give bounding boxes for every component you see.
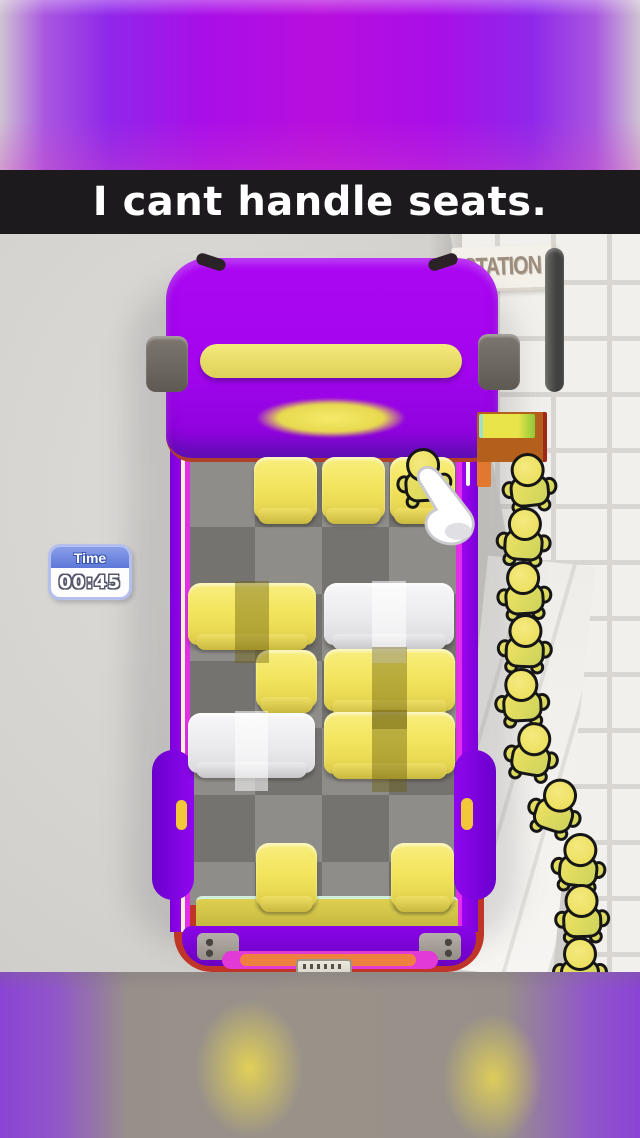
timer-header: Time [51, 547, 129, 568]
caption-text: I cant handle seats. [93, 179, 547, 225]
bus-mirror-right [478, 334, 520, 390]
bus-seat-white-double-7[interactable] [188, 713, 315, 773]
bus-hood-highlight [256, 398, 406, 438]
bus-seat-yellow-single-10[interactable] [391, 843, 454, 907]
timer-value: 00:45 [51, 568, 129, 597]
queue-passenger-9 [552, 936, 608, 972]
bus-seat-yellow-double-8[interactable] [324, 712, 455, 774]
bus-seat-yellow-double-6[interactable] [324, 649, 455, 711]
bus-windshield [200, 344, 462, 378]
bus-seat-yellow-single-9[interactable] [256, 843, 317, 907]
bus-seat-yellow-double-3[interactable] [188, 583, 316, 645]
boarding-platform-top [479, 414, 535, 438]
screenshot-canvas: I cant handle seats. STATION [0, 0, 640, 1138]
bus-mirror-left [146, 336, 188, 392]
game-viewport: STATION [0, 234, 640, 972]
timer-badge: Time 00:45 [48, 544, 132, 600]
bus-seat-yellow-single-1[interactable] [322, 457, 385, 519]
bottom-letterbox-blur [0, 972, 640, 1138]
top-letterbox-blur [0, 0, 640, 170]
bus-wheel-accent-right [461, 798, 473, 830]
bus-license-plate [296, 959, 352, 972]
caption-bar: I cant handle seats. [0, 170, 640, 234]
queue-passenger-9-h [563, 937, 597, 971]
timer-label: Time [74, 550, 106, 566]
game-world: STATION [0, 234, 640, 972]
station-pole [545, 248, 564, 392]
bus-wheel-accent-left [176, 800, 187, 830]
bus-seat-yellow-single-0[interactable] [254, 457, 317, 519]
bus-wheel-left [152, 750, 194, 900]
hand-cursor-icon [404, 462, 499, 557]
bus-seat-white-double-4[interactable] [324, 583, 454, 645]
